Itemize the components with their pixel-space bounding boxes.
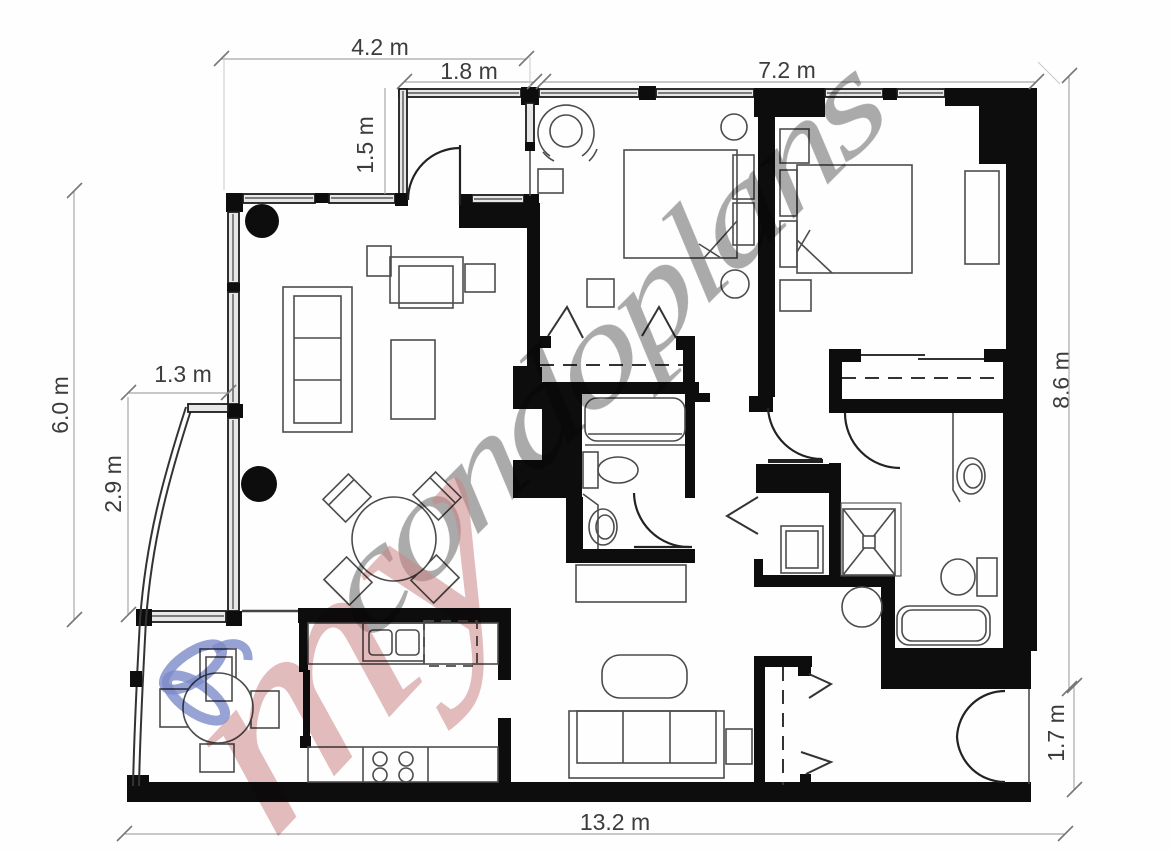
svg-text:6.0 m: 6.0 m — [47, 376, 73, 434]
svg-text:13.2 m: 13.2 m — [580, 809, 650, 835]
svg-text:8.6 m: 8.6 m — [1048, 351, 1074, 409]
svg-text:1.5 m: 1.5 m — [352, 116, 378, 174]
svg-text:1.3 m: 1.3 m — [154, 361, 212, 387]
svg-text:2.9 m: 2.9 m — [100, 455, 126, 513]
svg-text:4.2 m: 4.2 m — [351, 34, 409, 60]
svg-text:1.7 m: 1.7 m — [1043, 704, 1069, 762]
svg-text:1.8 m: 1.8 m — [440, 58, 498, 84]
